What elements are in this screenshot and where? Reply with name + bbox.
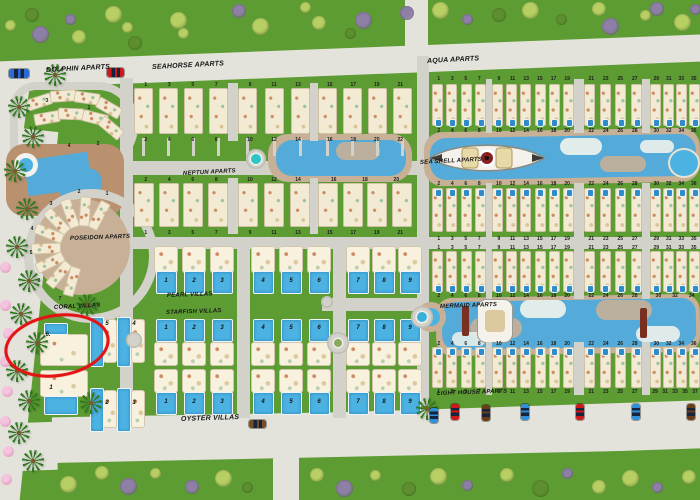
unit-number: 19 — [372, 82, 382, 88]
unit-number: 19 — [562, 76, 572, 82]
villa-number: 9 — [404, 325, 416, 332]
apartment-building — [183, 183, 203, 227]
unit-number: 31 — [664, 236, 674, 242]
unit-number: 17 — [348, 82, 358, 88]
apartment-building — [291, 88, 310, 134]
bush-icon — [252, 18, 269, 35]
roundabout — [126, 332, 142, 348]
unit-pool — [509, 285, 516, 293]
bush-icon — [122, 22, 133, 33]
building-number: 2 — [93, 141, 103, 147]
villa-number: 6 — [313, 399, 325, 406]
unit-pool — [587, 189, 594, 197]
villa — [279, 369, 303, 393]
apartment-building — [392, 183, 412, 227]
villa — [251, 246, 275, 273]
unit-number: 36 — [689, 181, 699, 187]
unit-pool — [566, 119, 573, 127]
apartment-building — [134, 183, 154, 227]
unit-pool — [478, 189, 485, 197]
unit-number: 14 — [521, 181, 531, 187]
unit-number: 32 — [670, 293, 680, 299]
unit-number: 20 — [391, 177, 401, 183]
unit-number: 13 — [521, 245, 531, 251]
unit-number: 3 — [164, 230, 174, 236]
unit-pool — [463, 348, 470, 356]
unit-number: 3 — [447, 76, 457, 82]
unit-number: 5 — [188, 82, 198, 88]
unit-number: 18 — [348, 137, 358, 143]
unit-number: 11 — [508, 245, 518, 251]
bush-icon — [150, 468, 161, 479]
villa-number: 1 — [45, 385, 57, 392]
unit-number: 10 — [245, 177, 255, 183]
villa-number: 8 — [378, 399, 390, 406]
building-number: 4 — [64, 143, 74, 149]
bush-icon — [492, 8, 506, 22]
road-v-villas-1 — [237, 244, 250, 418]
unit-pool — [679, 348, 686, 356]
villa-number: 8 — [378, 278, 390, 285]
unit-number: 31 — [664, 245, 674, 251]
villa-number: 3 — [216, 278, 228, 285]
unit-number: 18 — [360, 177, 370, 183]
villa — [210, 342, 234, 366]
car-icon — [687, 404, 695, 420]
unit-number: 25 — [615, 76, 625, 82]
apartment-building — [367, 183, 387, 227]
apartment-building — [184, 88, 203, 134]
palm-tree-icon — [6, 236, 28, 258]
unit-number: 24 — [601, 128, 611, 134]
building-number: 2 — [74, 189, 84, 195]
villa-number: 4 — [257, 278, 269, 285]
unit-number: 18 — [549, 293, 559, 299]
unit-number: 35 — [689, 76, 699, 82]
unit-pool — [551, 189, 558, 197]
bush-icon — [432, 2, 449, 19]
car-icon — [451, 404, 459, 420]
unit-number: 20 — [562, 293, 572, 299]
unit-number: 20 — [562, 181, 572, 187]
unit-number: 13 — [293, 82, 303, 88]
unit-pool — [653, 285, 660, 293]
unit-number: 6 — [461, 341, 471, 347]
unit-number: 7 — [211, 230, 221, 236]
unit-pool — [692, 348, 699, 356]
apartment-building — [343, 88, 362, 134]
unit-number: 30 — [653, 293, 663, 299]
unit-number: 22 — [586, 181, 596, 187]
car-icon — [632, 404, 640, 420]
unit-number: 7 — [474, 76, 484, 82]
unit-pool — [566, 285, 573, 293]
apartment-building — [393, 88, 412, 134]
unit-number: 13 — [521, 76, 531, 82]
unit-pool — [523, 119, 530, 127]
unit-number: 23 — [601, 245, 611, 251]
apartment-building — [238, 88, 257, 134]
bush-icon — [215, 470, 232, 487]
unit-number: 10 — [494, 293, 504, 299]
villa — [372, 342, 396, 366]
unit-number: 15 — [535, 76, 545, 82]
unit-number: 22 — [586, 341, 596, 347]
villa-number: 2 — [101, 400, 113, 407]
unit-number: 23 — [601, 236, 611, 242]
villa — [279, 342, 303, 366]
villa — [251, 369, 275, 393]
unit-number: 20 — [562, 128, 572, 134]
unit-number: 25 — [615, 245, 625, 251]
palm-tree-icon — [16, 198, 38, 220]
unit-pool — [602, 285, 609, 293]
unit-pool — [523, 189, 530, 197]
unit-number: 28 — [630, 181, 640, 187]
building-number: 3 — [42, 98, 52, 104]
unit-number: 2 — [434, 128, 444, 134]
villa — [307, 369, 331, 393]
unit-pool — [523, 348, 530, 356]
driveway — [642, 342, 650, 395]
villa-number: 4 — [257, 325, 269, 332]
unit-number: 27 — [630, 245, 640, 251]
villa-number: 3 — [216, 399, 228, 406]
unit-number: 18 — [549, 128, 559, 134]
bush-icon — [355, 12, 372, 29]
bush-icon — [105, 6, 122, 23]
unit-pool — [679, 189, 686, 197]
unit-number: 23 — [601, 389, 611, 395]
unit-number: 6 — [461, 181, 471, 187]
unit-pool — [566, 348, 573, 356]
unit-number: 9 — [494, 76, 504, 82]
unit-number: 33 — [676, 76, 686, 82]
unit-number: 31 — [664, 76, 674, 82]
unit-number: 11 — [269, 230, 279, 236]
unit-number: 3 — [164, 82, 174, 88]
driveway — [310, 178, 318, 234]
apartment-building — [318, 88, 337, 134]
villa-number: 5 — [285, 325, 297, 332]
unit-number: 3 — [447, 245, 457, 251]
driveway — [228, 178, 238, 234]
bush-icon — [400, 6, 414, 20]
unit-number: 21 — [395, 230, 405, 236]
unit-number: 20 — [372, 137, 382, 143]
villa — [346, 246, 370, 273]
unit-pool — [463, 119, 470, 127]
villa-number: 3 — [216, 325, 228, 332]
bush-icon — [300, 2, 311, 13]
unit-pool — [634, 119, 641, 127]
palm-tree-icon — [4, 160, 26, 182]
car-icon — [576, 404, 584, 420]
unit-number: 36 — [689, 341, 699, 347]
unit-number: 32 — [664, 341, 674, 347]
unit-number: 19 — [372, 230, 382, 236]
driveway — [574, 342, 584, 395]
dolphin-building — [50, 89, 77, 103]
unit-pool — [666, 348, 673, 356]
villa-number: 4 — [257, 399, 269, 406]
villa-number: 2 — [188, 278, 200, 285]
unit-number: 10 — [245, 137, 255, 143]
unit-number: 8 — [474, 181, 484, 187]
unit-number: 4 — [447, 293, 457, 299]
unit-number: 31 — [660, 389, 670, 395]
unit-number: 29 — [650, 389, 660, 395]
unit-number: 13 — [521, 236, 531, 242]
driveway — [642, 246, 650, 299]
unit-number: 36 — [689, 128, 699, 134]
bush-icon — [336, 480, 353, 497]
villa — [154, 246, 178, 273]
mermaid-bridge-1 — [462, 306, 469, 336]
unit-number: 3 — [447, 236, 457, 242]
unit-pool — [478, 348, 485, 356]
unit-number: 30 — [651, 341, 661, 347]
roundabout — [321, 296, 333, 308]
seashell-sand-2 — [600, 156, 646, 172]
unit-number: 10 — [494, 128, 504, 134]
unit-number: 16 — [325, 137, 335, 143]
unit-pool — [449, 348, 456, 356]
unit-pool — [692, 119, 699, 127]
unit-pool — [449, 189, 456, 197]
bush-icon — [462, 14, 473, 25]
fountain-icon — [334, 339, 342, 347]
unit-number: 19 — [562, 236, 572, 242]
unit-number: 9 — [494, 236, 504, 242]
unit-pool — [435, 348, 442, 356]
unit-pool — [509, 189, 516, 197]
unit-number: 14 — [521, 341, 531, 347]
apartment-building — [318, 183, 338, 227]
bush-icon — [120, 478, 137, 495]
unit-number: 20 — [562, 341, 572, 347]
unit-pool — [634, 285, 641, 293]
poseidon-building — [78, 196, 91, 227]
villa-number: 2 — [188, 325, 200, 332]
unit-number: 11 — [508, 389, 518, 395]
pink-tree-icon — [3, 446, 14, 457]
bush-icon — [500, 468, 514, 482]
driveway — [228, 83, 238, 141]
car-icon — [430, 408, 438, 423]
villa-number: 9 — [404, 399, 416, 406]
unit-pool — [495, 189, 502, 197]
palm-tree-icon — [18, 390, 40, 412]
unit-number: 8 — [474, 128, 484, 134]
unit-number: 16 — [535, 293, 545, 299]
villa — [154, 369, 178, 393]
villa-number: 1 — [160, 399, 172, 406]
bush-icon — [430, 468, 447, 485]
bush-icon — [674, 14, 691, 31]
building-number: 7 — [55, 296, 65, 302]
unit-number: 25 — [615, 236, 625, 242]
unit-number: 34 — [687, 293, 697, 299]
villa-number: 9 — [404, 278, 416, 285]
unit-pool — [666, 285, 673, 293]
villa-number: 1 — [160, 325, 172, 332]
bush-icon — [690, 4, 700, 15]
unit-number: 30 — [651, 128, 661, 134]
unit-number: 1 — [141, 82, 151, 88]
unit-number: 12 — [269, 177, 279, 183]
unit-pool — [618, 119, 625, 127]
villa-number: 6 — [313, 325, 325, 332]
bush-icon — [5, 20, 16, 31]
unit-number: 21 — [586, 245, 596, 251]
unit-number: 6 — [188, 177, 198, 183]
unit-number: 26 — [615, 293, 625, 299]
villa-number: 6 — [313, 278, 325, 285]
unit-number: 8 — [474, 293, 484, 299]
driveway — [574, 246, 584, 299]
unit-number: 32 — [664, 128, 674, 134]
unit-pool — [537, 189, 544, 197]
unit-number: 21 — [586, 76, 596, 82]
bush-icon — [650, 2, 664, 16]
fountain-icon — [417, 312, 427, 322]
unit-pool — [449, 285, 456, 293]
building-number: 1 — [102, 191, 112, 197]
bush-icon — [640, 10, 651, 21]
unit-number: 19 — [562, 389, 572, 395]
apartment-building — [368, 88, 387, 134]
bush-icon — [232, 4, 246, 18]
palm-tree-icon — [18, 270, 40, 292]
bush-icon — [592, 2, 606, 16]
unit-number: 14 — [293, 177, 303, 183]
unit-pool — [634, 348, 641, 356]
driveway — [574, 183, 584, 239]
unit-pool — [618, 189, 625, 197]
unit-number: 25 — [615, 389, 625, 395]
palm-tree-icon — [8, 422, 30, 444]
villa — [372, 369, 396, 393]
building-number: 3 — [46, 201, 56, 207]
unit-number: 17 — [549, 76, 559, 82]
villa — [210, 369, 234, 393]
unit-number: 8 — [211, 137, 221, 143]
unit-number: 21 — [586, 389, 596, 395]
pink-tree-icon — [2, 386, 13, 397]
bush-icon — [562, 468, 573, 479]
unit-number: 14 — [293, 137, 303, 143]
bush-icon — [462, 480, 473, 491]
unit-number: 12 — [508, 181, 518, 187]
seashell-cloud-1 — [560, 138, 602, 155]
apartment-building — [290, 183, 310, 227]
bush-icon — [602, 18, 619, 35]
unit-number: 17 — [348, 230, 358, 236]
unit-pool — [602, 348, 609, 356]
apartment-building — [159, 88, 178, 134]
unit-pool — [653, 119, 660, 127]
unit-number: 11 — [269, 82, 279, 88]
unit-number: 4 — [447, 128, 457, 134]
unit-number: 22 — [586, 128, 596, 134]
unit-number: 13 — [521, 389, 531, 395]
unit-pool — [679, 119, 686, 127]
district-label-neptun: NEPTUN APARTS — [183, 168, 236, 177]
unit-number: 34 — [676, 181, 686, 187]
apartment-building — [159, 183, 179, 227]
building-number: 1 — [84, 105, 94, 111]
palm-tree-icon — [22, 450, 44, 472]
bush-icon — [345, 28, 356, 39]
unit-number: 26 — [615, 341, 625, 347]
mermaid-platform-core — [485, 310, 505, 332]
bush-icon — [532, 480, 549, 497]
unit-pool — [495, 285, 502, 293]
apartment-building — [238, 183, 258, 227]
unit-pool — [587, 285, 594, 293]
unit-number: 11 — [508, 236, 518, 242]
villa-number: 7 — [352, 278, 364, 285]
unit-number: 7 — [474, 245, 484, 251]
bush-icon — [592, 480, 606, 494]
unit-number: 6 — [461, 293, 471, 299]
unit-number: 16 — [535, 341, 545, 347]
unit-number: 1 — [141, 230, 151, 236]
unit-number: 1 — [434, 76, 444, 82]
unit-number: 34 — [676, 341, 686, 347]
villa-number: 1 — [160, 278, 172, 285]
unit-number: 12 — [508, 128, 518, 134]
unit-number: 7 — [211, 82, 221, 88]
villa — [210, 246, 234, 273]
unit-number: 33 — [670, 389, 680, 395]
unit-pool — [478, 285, 485, 293]
unit-number: 35 — [689, 245, 699, 251]
unit-pool — [551, 119, 558, 127]
unit-number: 18 — [549, 181, 559, 187]
unit-pool — [634, 189, 641, 197]
villa-pool — [117, 388, 131, 432]
bush-icon — [682, 470, 696, 484]
unit-number: 14 — [521, 128, 531, 134]
unit-number: 27 — [630, 236, 640, 242]
unit-number: 8 — [211, 177, 221, 183]
villa-number: 2 — [188, 399, 200, 406]
unit-pool — [463, 189, 470, 197]
unit-number: 12 — [508, 341, 518, 347]
villa — [131, 390, 145, 428]
unit-pool — [495, 119, 502, 127]
unit-number: 8 — [474, 341, 484, 347]
district-label-pearl: PEARL VILLAS — [167, 291, 213, 299]
villa — [372, 246, 396, 273]
driveway — [642, 183, 650, 239]
villa-number: 4 — [128, 321, 140, 328]
unit-number: 22 — [395, 137, 405, 143]
unit-pool — [566, 189, 573, 197]
bush-icon — [312, 16, 326, 30]
unit-number: 9 — [245, 82, 255, 88]
bush-icon — [185, 480, 199, 494]
unit-pool — [509, 348, 516, 356]
unit-number: 28 — [630, 128, 640, 134]
unit-number: 15 — [325, 230, 335, 236]
unit-number: 2 — [434, 341, 444, 347]
pink-tree-icon — [0, 262, 11, 273]
unit-number: 29 — [651, 236, 661, 242]
unit-number: 28 — [630, 293, 640, 299]
